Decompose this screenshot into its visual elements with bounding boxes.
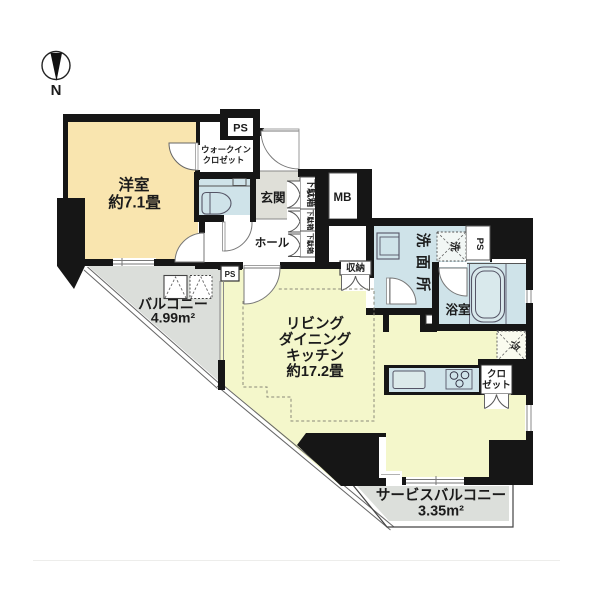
- svg-text:面: 面: [414, 255, 431, 270]
- svg-text:4.99m²: 4.99m²: [151, 310, 196, 326]
- svg-text:下駄箱: 下駄箱: [305, 179, 317, 208]
- svg-text:PS: PS: [474, 238, 485, 251]
- svg-text:3.35m²: 3.35m²: [418, 504, 464, 520]
- svg-text:N: N: [51, 82, 62, 99]
- svg-text:リビング: リビング: [286, 315, 344, 333]
- svg-text:PS: PS: [233, 123, 248, 135]
- svg-text:下駄箱: 下駄箱: [306, 233, 315, 254]
- svg-text:約17.2畳: 約17.2畳: [286, 362, 344, 380]
- svg-text:ゼット: ゼット: [482, 379, 511, 391]
- svg-text:洗: 洗: [414, 233, 432, 248]
- svg-text:ダイニング: ダイニング: [279, 331, 352, 349]
- svg-text:下駄箱: 下駄箱: [306, 210, 315, 231]
- svg-text:クロゼット: クロゼット: [203, 155, 245, 165]
- svg-text:所: 所: [414, 277, 431, 292]
- svg-text:PS: PS: [225, 270, 236, 279]
- svg-text:約7.1畳: 約7.1畳: [108, 193, 161, 212]
- svg-text:洗: 洗: [449, 242, 462, 252]
- svg-text:浴室: 浴室: [445, 302, 471, 317]
- svg-text:洋室: 洋室: [118, 175, 149, 194]
- svg-text:クロ: クロ: [487, 369, 506, 380]
- svg-text:キッチン: キッチン: [286, 348, 344, 365]
- svg-text:冷: 冷: [509, 341, 522, 351]
- svg-text:ウォークイン: ウォークイン: [201, 145, 251, 155]
- svg-text:MB: MB: [334, 192, 352, 204]
- svg-text:収納: 収納: [346, 262, 365, 274]
- svg-text:サービスバルコニー: サービスバルコニー: [376, 487, 506, 504]
- svg-text:玄関: 玄関: [260, 190, 285, 205]
- svg-text:ホール: ホール: [255, 237, 290, 250]
